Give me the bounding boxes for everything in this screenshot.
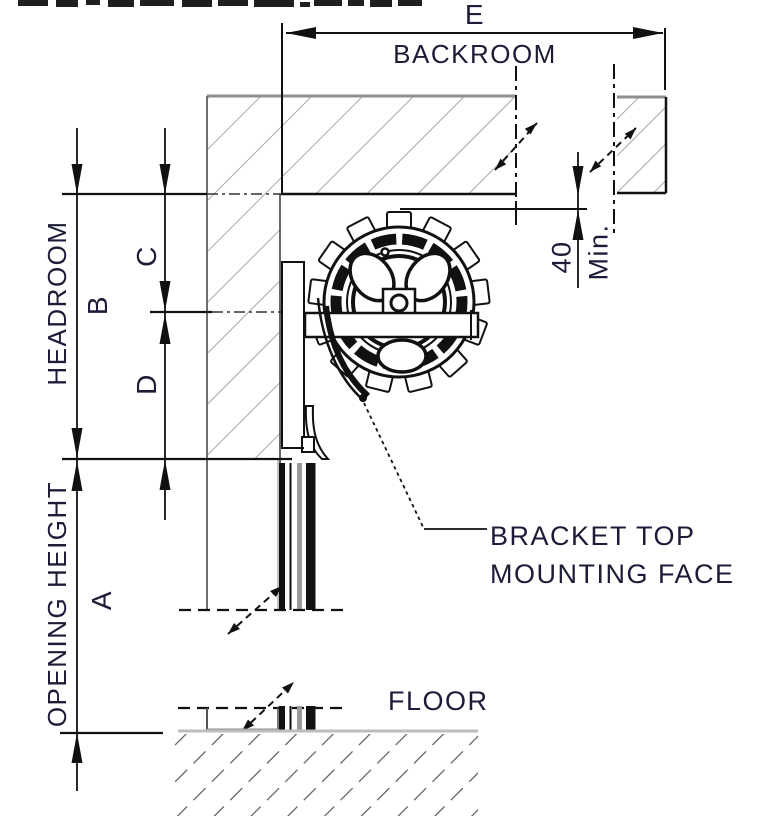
arrowhead [633,27,663,39]
dim-d-letter: D [131,373,162,395]
arrowhead [72,164,83,194]
wheel-opening [378,340,426,372]
clearance-qualifier-label: Min. [583,223,613,280]
guide-rail-upper [279,463,316,610]
floor-label: FLOOR [388,686,489,716]
arrowhead [286,27,316,39]
cropped-title-fragment [18,0,422,7]
floor-area: FLOOR [175,682,489,816]
leader-line [364,403,424,529]
mounting-face-label: MOUNTING FACE [490,559,735,589]
elevation-drawing-page: E BACKROOM 40 Min. HEADROOM B C [0,0,773,824]
opening-height-label: OPENING HEIGHT [42,481,72,727]
arrowhead [160,314,171,344]
arrowhead [72,733,83,763]
bracket-top-label: BRACKET TOP [490,521,696,551]
dim-e-letter: E [465,0,485,30]
elevation-drawing: E BACKROOM 40 Min. HEADROOM B C [0,0,773,824]
arrowhead [72,461,83,491]
backroom-label: BACKROOM [393,39,557,69]
arrowhead [160,281,171,311]
dim-c-letter: C [131,245,162,267]
arrowhead [573,166,584,196]
bracket-mounting-plate [282,262,304,448]
arrowhead [160,164,171,194]
dim-a-letter: A [86,590,117,610]
bracket-annotation: BRACKET TOP MOUNTING FACE [364,403,735,589]
lintel-right-end-section [617,97,666,193]
guide-break [179,586,348,634]
dim-b-letter: B [82,295,113,315]
ground-hatch [175,734,478,816]
arrowhead [72,428,83,458]
arrowhead [160,460,171,490]
headroom-label: HEADROOM [42,220,72,385]
clearance-value-label: 40 [546,240,576,273]
arrowhead [573,210,584,240]
